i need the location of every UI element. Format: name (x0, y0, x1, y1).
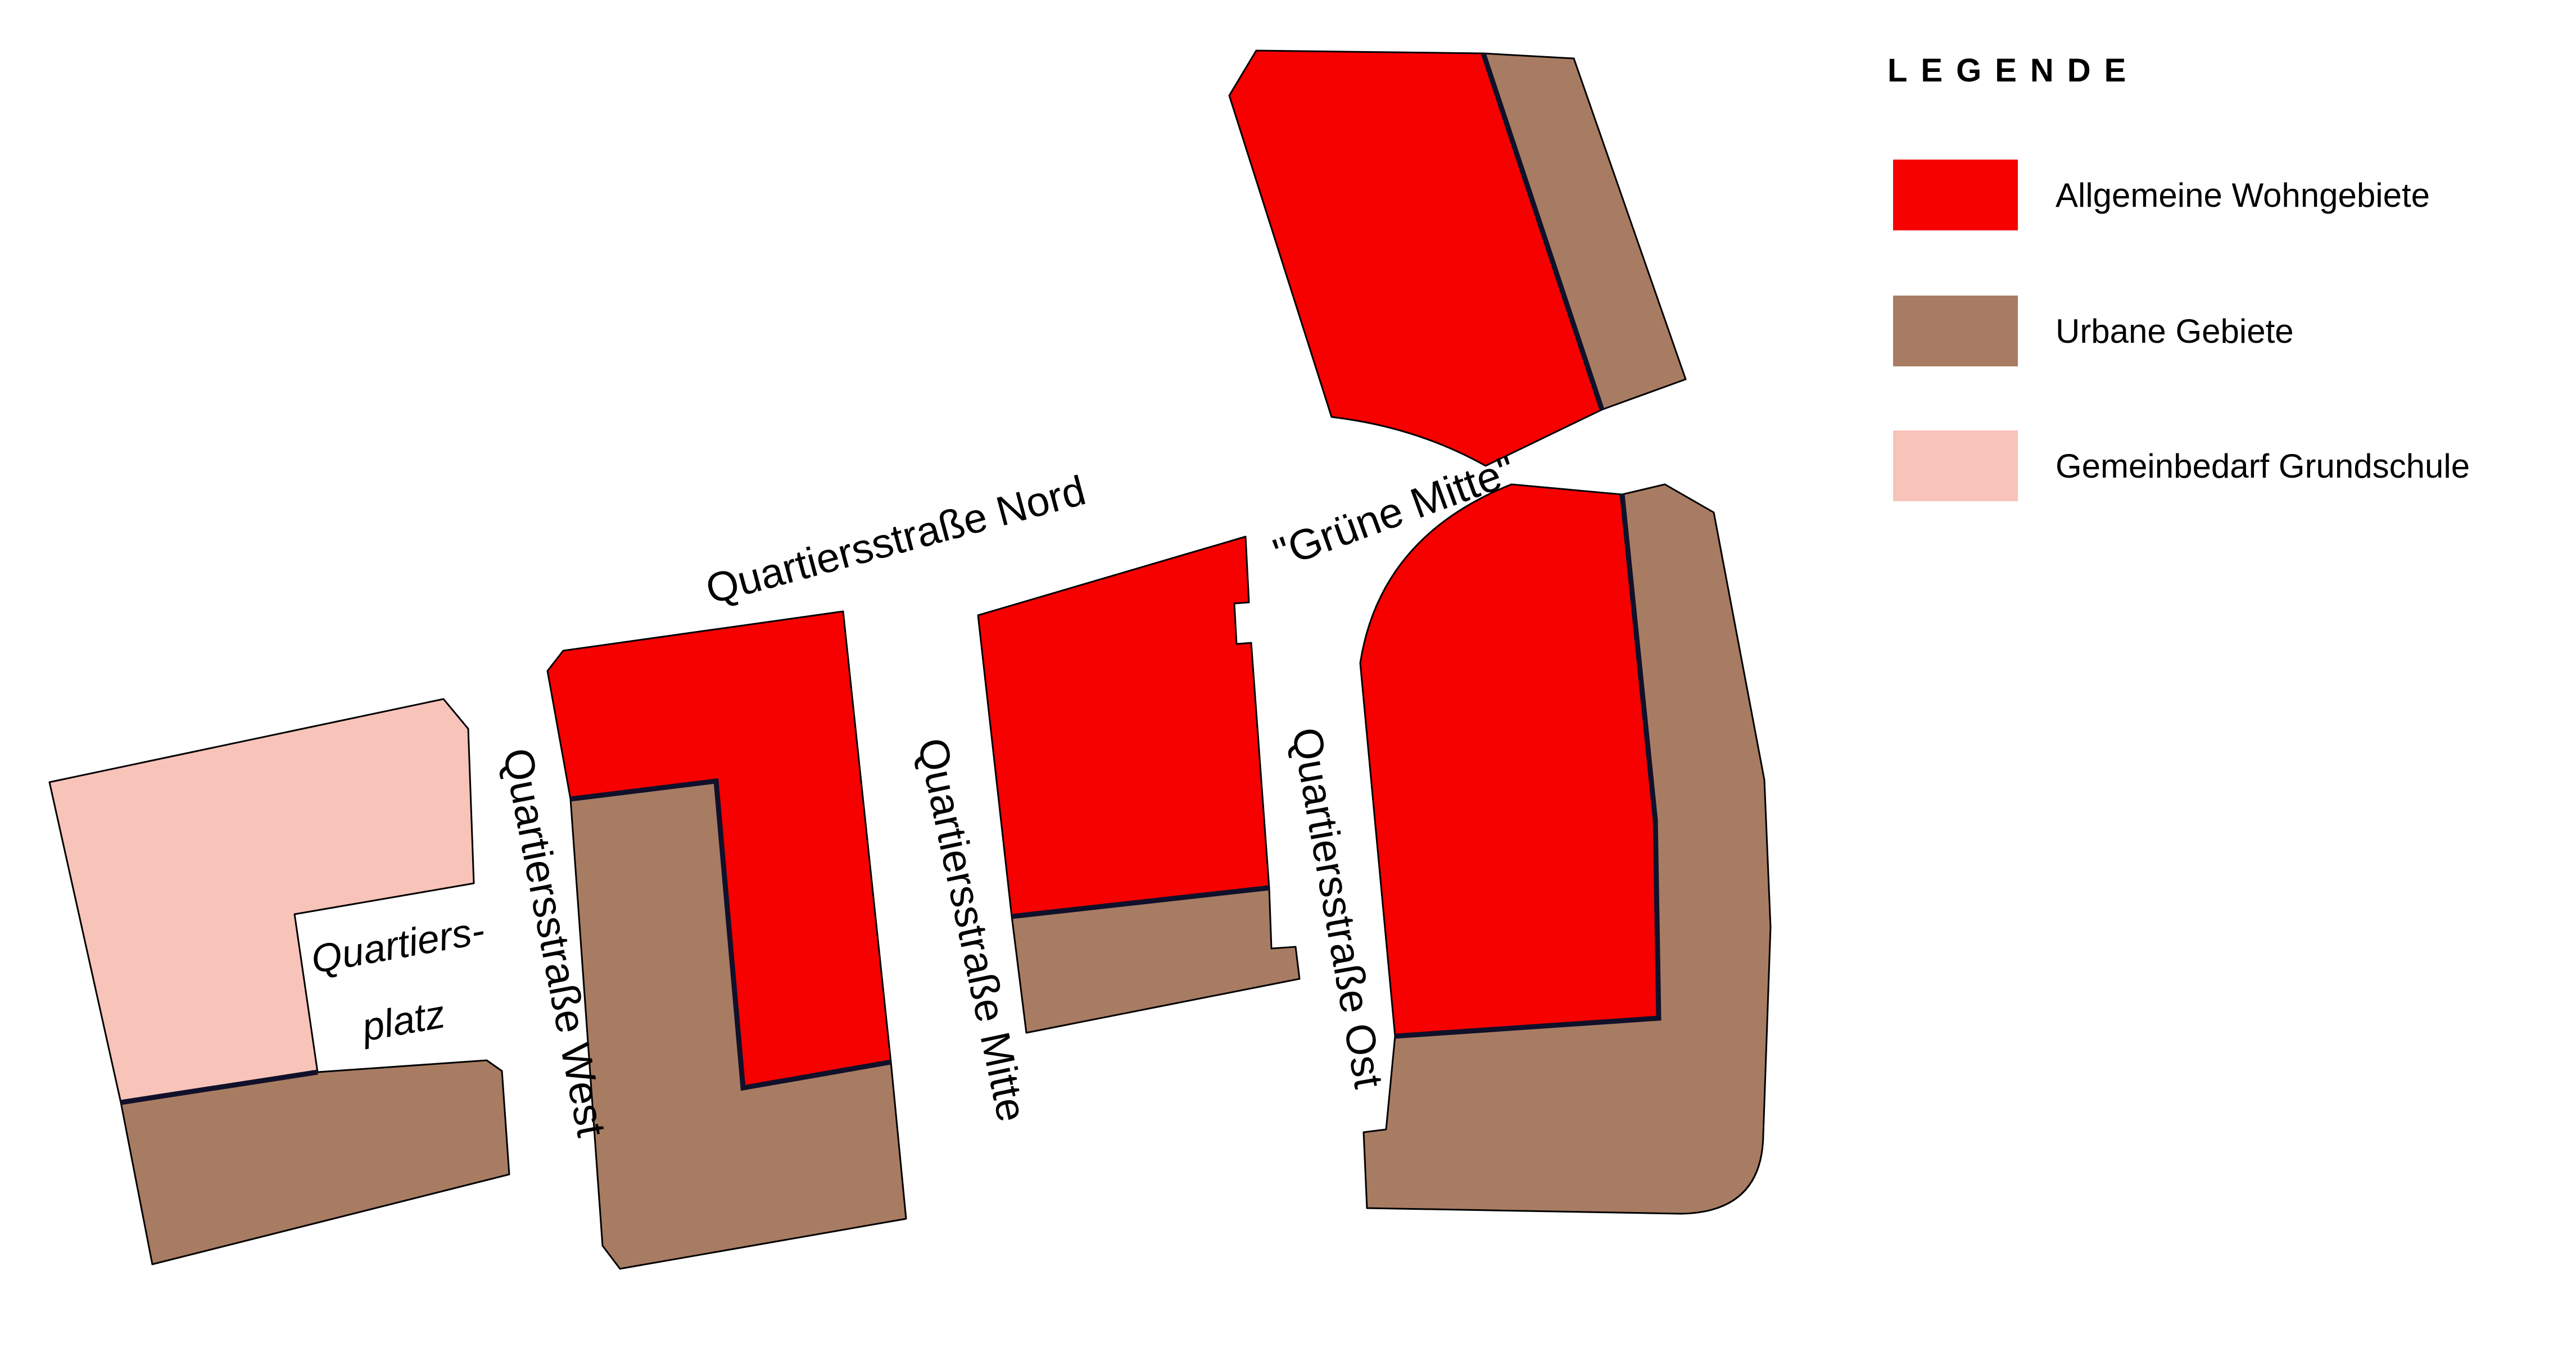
label-quartiersplatz-line1: Quartiers- (308, 908, 488, 982)
legend-label-grundschule: Gemeinbedarf Grundschule (2056, 447, 2470, 485)
area-wohngebiet-mitte (978, 537, 1269, 916)
legend-title: LEGENDE (1887, 52, 2139, 89)
legend-item-wohngebiete: Allgemeine Wohngebiete (1893, 160, 2430, 230)
area-wohngebiet-ost (1360, 484, 1659, 1036)
legend-item-urbane-gebiete: Urbane Gebiete (1893, 296, 2294, 366)
legend-label-urbane-gebiete: Urbane Gebiete (2056, 312, 2294, 350)
zone-areas (49, 51, 1771, 1269)
site-plan: Quartiersstraße Nord "Grüne Mitte" Quart… (0, 0, 2576, 1357)
street-label-nord: Quartiersstraße Nord (701, 466, 1090, 612)
legend-swatch-wohngebiete (1893, 160, 2018, 230)
legend-swatch-grundschule (1893, 430, 2018, 501)
legend: LEGENDE Allgemeine Wohngebiete Urbane Ge… (1887, 52, 2470, 501)
area-grundschule (49, 699, 474, 1102)
legend-item-grundschule: Gemeinbedarf Grundschule (1893, 430, 2470, 501)
legend-swatch-urbane-gebiete (1893, 296, 2018, 366)
label-quartiersplatz-line2: platz (357, 992, 448, 1050)
street-labels: Quartiersstraße Nord "Grüne Mitte" Quart… (308, 446, 1522, 1141)
legend-label-wohngebiete: Allgemeine Wohngebiete (2056, 176, 2430, 214)
